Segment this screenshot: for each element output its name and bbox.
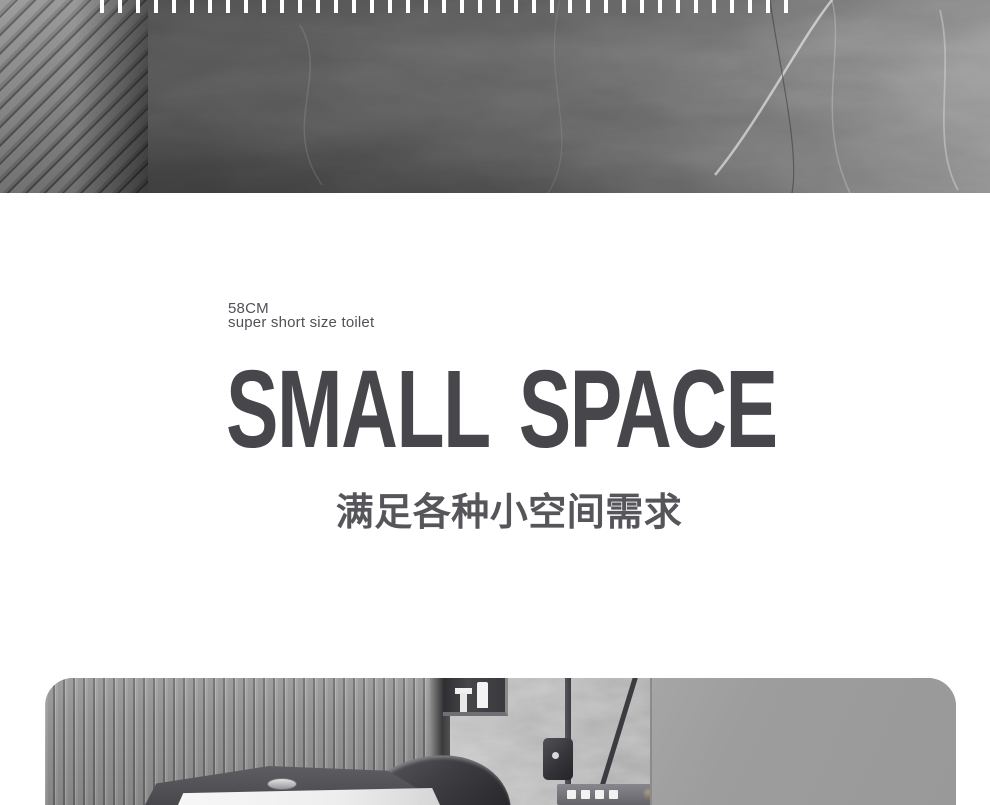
glass-partition [650, 678, 956, 805]
ruler-ticks [100, 0, 794, 13]
shower-control-panel [557, 784, 661, 805]
page-title: SMALL SPACE [226, 355, 777, 465]
subtitle-cn: 满足各种小空间需求 [14, 492, 990, 536]
marble-veins [0, 0, 990, 193]
toiletry-bottle [455, 688, 472, 694]
kicker-subtitle-en: super short size toilet [228, 316, 374, 330]
control-button [567, 790, 576, 799]
hand-shower [543, 738, 573, 780]
storage-niche [443, 678, 508, 716]
product-detail-page: 58CM super short size toilet SMALL SPACE… [0, 0, 990, 805]
control-button [581, 790, 590, 799]
toiletry-bottle [477, 682, 488, 708]
kicker-block: 58CM super short size toilet [228, 302, 374, 329]
bathroom-photo-card [45, 678, 956, 805]
hero-marble-banner [0, 0, 990, 193]
control-button [609, 790, 618, 799]
fluted-panel-texture [0, 0, 148, 193]
flush-button [267, 778, 297, 790]
control-button [595, 790, 604, 799]
